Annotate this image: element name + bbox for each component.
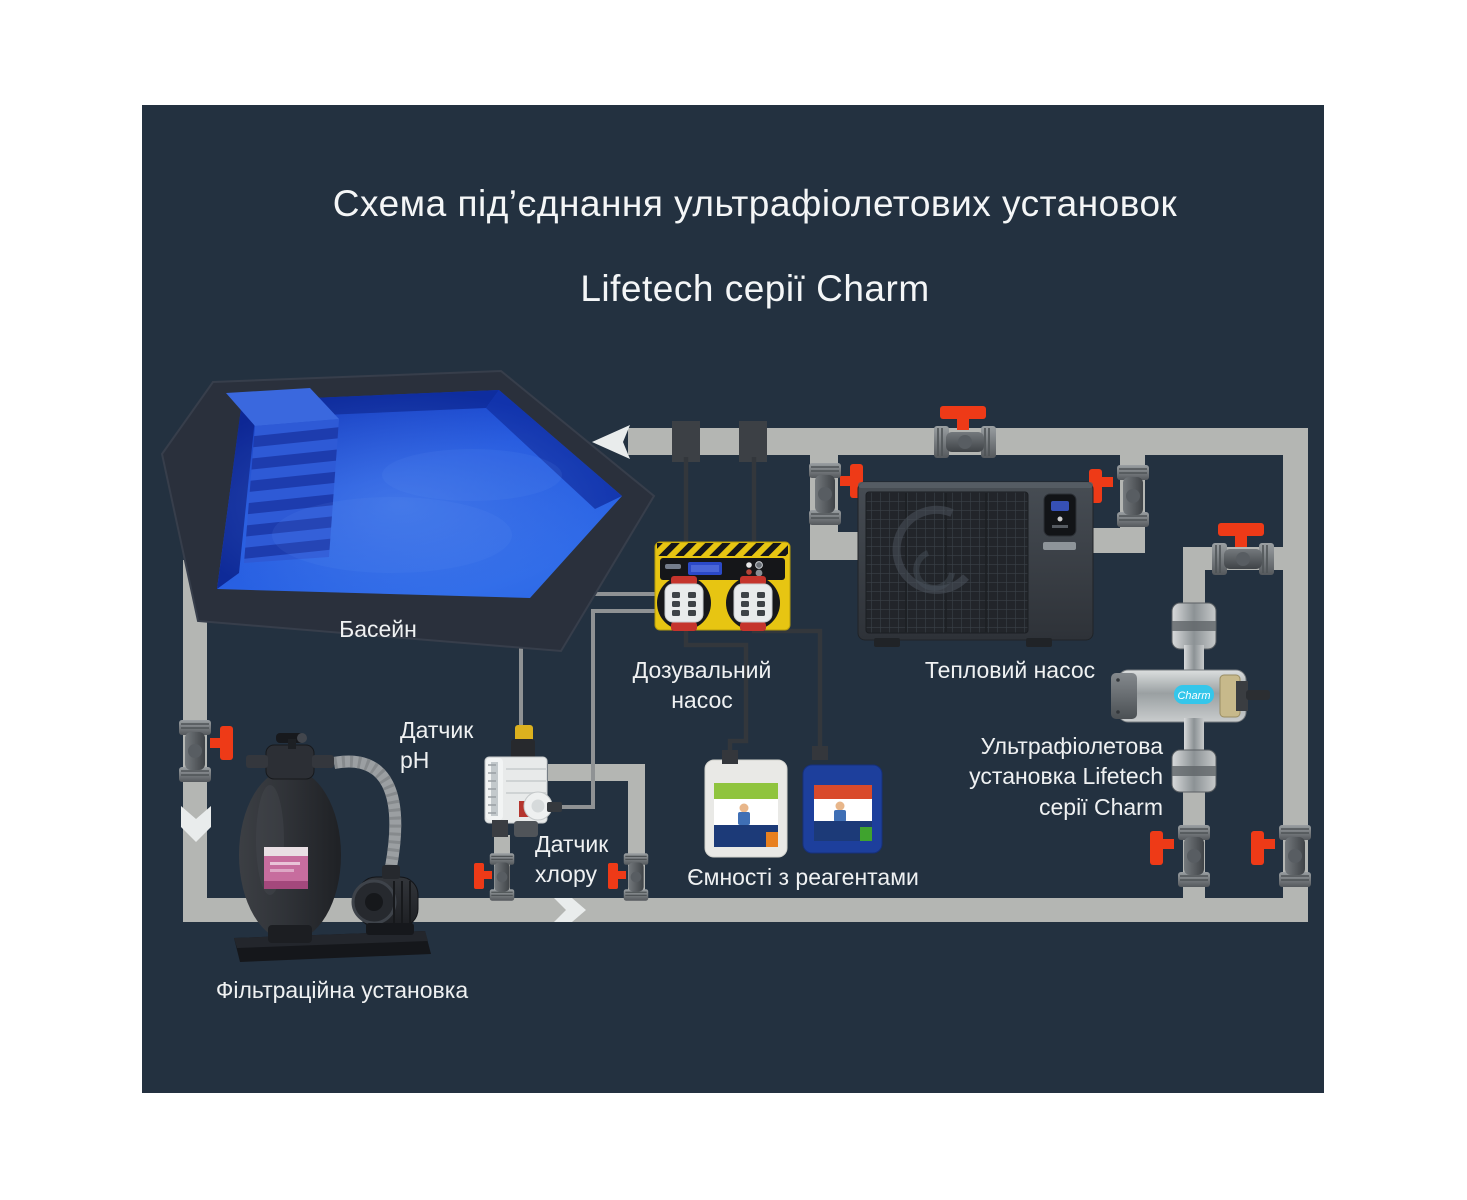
chlorine-sensor-label: Датчик хлору (535, 830, 645, 890)
valve-icon (1212, 523, 1274, 575)
filter-multiport-valve (266, 745, 314, 779)
dosing-pump (655, 542, 790, 631)
pool-illustration (162, 371, 654, 651)
injection-fitting-left (672, 421, 700, 462)
uv-probe (1246, 690, 1270, 700)
screenshot-root: Charm Схема під’єднання ультрафіолетових… (0, 0, 1467, 1200)
valve-icon (1251, 825, 1311, 887)
reagent-tanks (705, 746, 882, 857)
piping-diagram: Charm (142, 105, 1324, 1093)
diagram-title-line1: Схема під’єднання ультрафіолетових устан… (186, 183, 1324, 225)
pipe-uv-upper (1183, 547, 1205, 612)
jug-fitting-right (812, 746, 828, 760)
heat-pump-label: Тепловий насос (910, 656, 1110, 686)
injection-fitting-right (739, 421, 767, 462)
uv-unit-label: Ультрафіолетова установка Lifetech серії… (953, 731, 1163, 822)
jug-fitting-left (722, 750, 738, 764)
reagent-jug-white (705, 760, 787, 857)
reagent-jug-blue (803, 765, 882, 853)
pipe-heatpump-right-elbow (1090, 528, 1145, 553)
heat-pump (858, 482, 1093, 647)
diagram-panel: Charm Схема під’єднання ультрафіолетових… (142, 105, 1324, 1093)
valve-icon (1150, 825, 1210, 887)
valve-icon (934, 406, 996, 458)
diagram-title-line2: Lifetech серії Charm (186, 268, 1324, 310)
reagent-tanks-label: Ємності з реагентами (682, 863, 924, 893)
pipe-heatpump-left-elbow (810, 532, 864, 560)
uv-badge-text: Charm (1177, 690, 1210, 702)
ph-sensor-label: Датчик pH (400, 716, 510, 776)
valve-icon (1089, 465, 1149, 527)
heat-pump-controller (1044, 494, 1076, 536)
filter-unit-label: Фільтраційна установка (197, 976, 487, 1006)
dosing-pump-label: Дозувальний насос (630, 656, 774, 716)
uv-flange (1111, 673, 1137, 719)
filter-hose (334, 762, 395, 867)
pool-label: Басейн (302, 615, 454, 645)
